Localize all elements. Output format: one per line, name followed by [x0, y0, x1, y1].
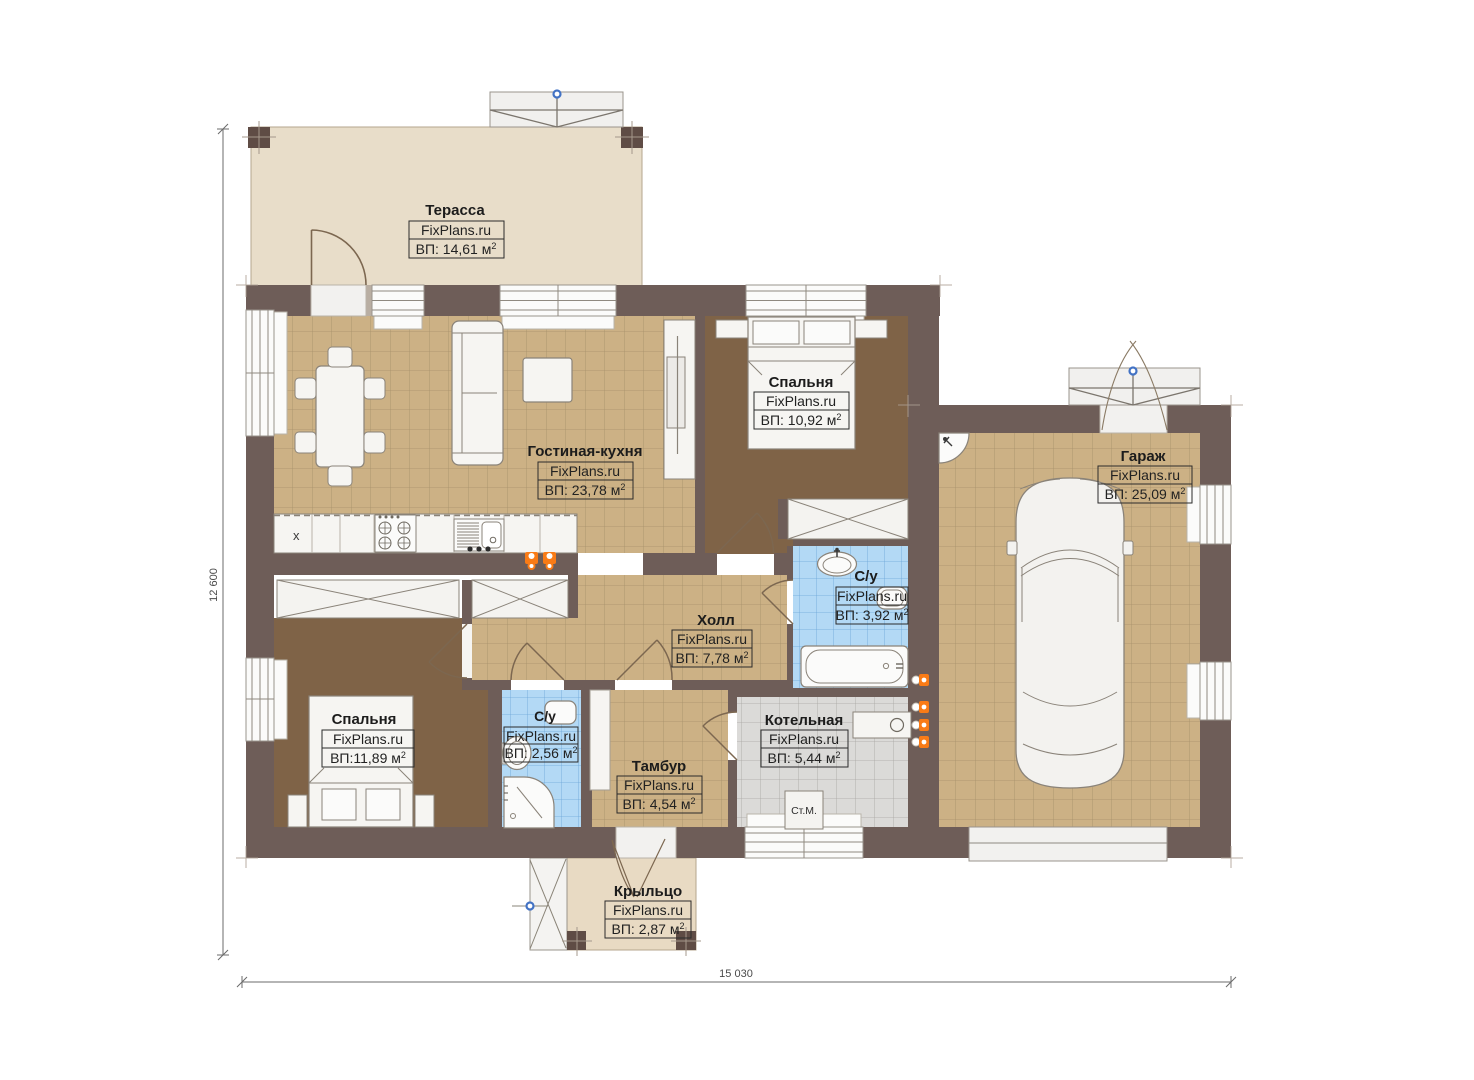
svg-text:ВП: 14,61 м2: ВП: 14,61 м2	[416, 241, 497, 257]
svg-text:12 600: 12 600	[208, 568, 220, 602]
svg-text:x: x	[293, 528, 300, 543]
svg-text:ВП: 5,44 м2: ВП: 5,44 м2	[768, 750, 841, 766]
svg-text:Холл: Холл	[697, 612, 735, 629]
svg-text:FixPlans.ru: FixPlans.ru	[1110, 467, 1180, 483]
svg-text:С/у: С/у	[854, 568, 878, 585]
svg-text:ВП:11,89 м2: ВП:11,89 м2	[330, 750, 406, 766]
svg-text:FixPlans.ru: FixPlans.ru	[624, 777, 694, 793]
svg-text:FixPlans.ru: FixPlans.ru	[421, 222, 491, 238]
svg-text:FixPlans.ru: FixPlans.ru	[333, 731, 403, 747]
svg-text:ВП: 10,92 м2: ВП: 10,92 м2	[761, 412, 842, 428]
svg-text:Терасса: Терасса	[425, 202, 485, 219]
svg-text:ВП: 2,56 м2: ВП: 2,56 м2	[505, 745, 578, 761]
svg-text:ВП: 23,78 м2: ВП: 23,78 м2	[545, 482, 626, 498]
svg-text:ВП: 4,54 м2: ВП: 4,54 м2	[623, 796, 696, 812]
svg-text:FixPlans.ru: FixPlans.ru	[550, 463, 620, 479]
svg-text:FixPlans.ru: FixPlans.ru	[837, 588, 907, 604]
svg-text:Ст.М.: Ст.М.	[791, 805, 817, 817]
svg-text:Гараж: Гараж	[1121, 448, 1166, 465]
svg-text:Гостиная-кухня: Гостиная-кухня	[528, 443, 643, 460]
svg-text:Тамбур: Тамбур	[632, 758, 686, 775]
svg-text:С/у: С/у	[534, 708, 556, 724]
svg-text:ВП: 3,92 м2: ВП: 3,92 м2	[836, 607, 909, 623]
svg-text:FixPlans.ru: FixPlans.ru	[506, 728, 576, 744]
svg-text:FixPlans.ru: FixPlans.ru	[677, 631, 747, 647]
svg-text:FixPlans.ru: FixPlans.ru	[766, 393, 836, 409]
svg-text:Крыльцо: Крыльцо	[614, 883, 682, 900]
svg-text:Спальня: Спальня	[332, 711, 397, 728]
svg-text:FixPlans.ru: FixPlans.ru	[613, 902, 683, 918]
svg-text:Котельная: Котельная	[765, 712, 844, 729]
svg-text:ВП: 25,09 м2: ВП: 25,09 м2	[1105, 486, 1186, 502]
svg-text:Спальня: Спальня	[769, 374, 834, 391]
svg-text:ВП: 7,78 м2: ВП: 7,78 м2	[676, 650, 749, 666]
svg-text:ВП: 2,87 м2: ВП: 2,87 м2	[612, 921, 685, 937]
svg-text:15 030: 15 030	[719, 968, 753, 980]
svg-text:FixPlans.ru: FixPlans.ru	[769, 731, 839, 747]
